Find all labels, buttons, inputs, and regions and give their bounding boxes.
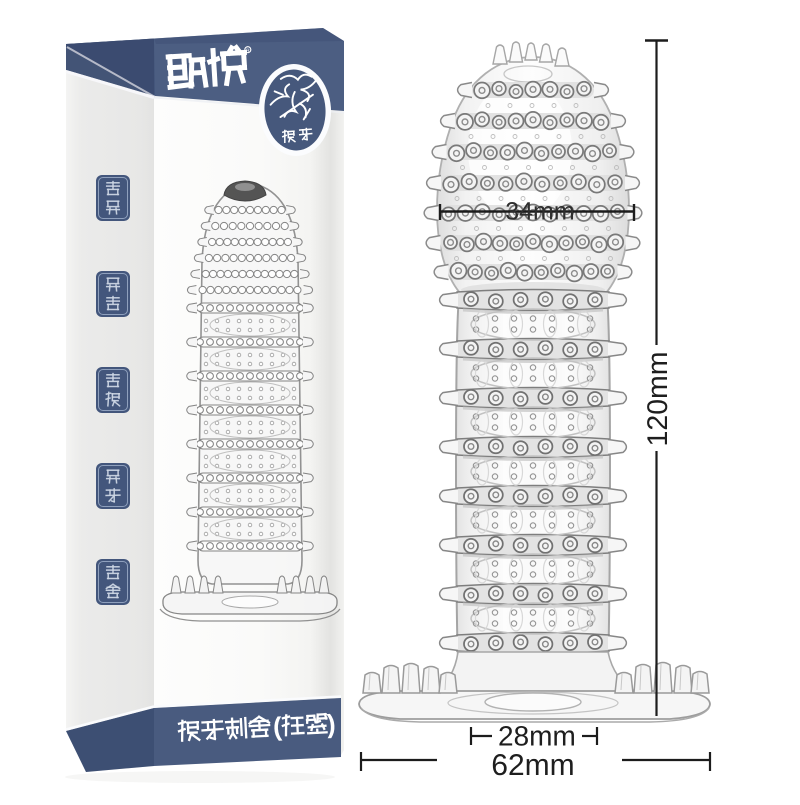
svg-text:): )	[326, 708, 336, 738]
